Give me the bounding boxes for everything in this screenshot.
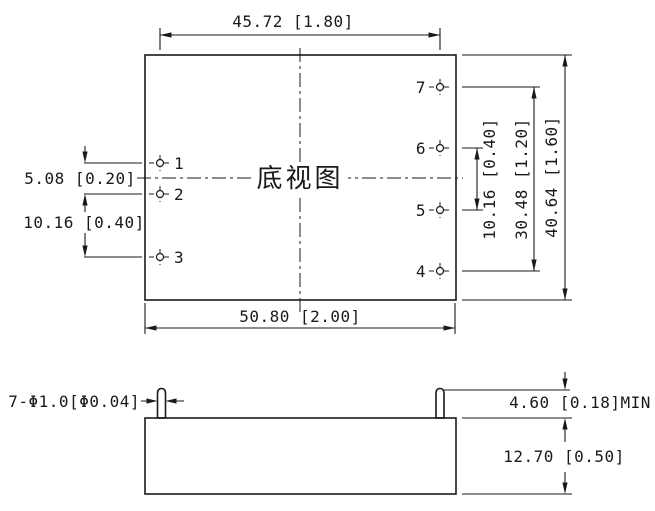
module-dimension-drawing: 底视图 1 2 3 7 6 5 <box>0 0 655 511</box>
dim-pin-span-height: 30.48 [1.20] <box>512 87 537 271</box>
dim-pin-span-width: 45.72 [1.80] <box>160 12 440 50</box>
technical-drawing-page: 底视图 1 2 3 7 6 5 <box>0 0 655 511</box>
pin-1-symbol <box>149 155 171 171</box>
pin-1-label: 1 <box>174 154 184 173</box>
pin-3-label: 3 <box>174 248 184 267</box>
pin-2-label: 2 <box>174 185 184 204</box>
dim-pin-diameter-text: 7-Φ1.0[Φ0.04] <box>8 392 140 411</box>
dim-pitch-2-3: 10.16 [0.40] <box>23 205 145 257</box>
dim-pitch-2-3-text: 10.16 [0.40] <box>23 213 145 232</box>
pin-3-symbol <box>149 249 171 265</box>
dim-pitch-5-6: 10.16 [0.40] <box>474 118 499 240</box>
pin-7-label: 7 <box>416 78 426 97</box>
dim-body-width: 50.80 [2.00] <box>145 303 455 334</box>
side-view: 7-Φ1.0[Φ0.04] 4.60 [0.18]MIN 12.70 [0.50… <box>8 372 651 494</box>
pin-5-symbol <box>429 202 451 218</box>
dim-body-width-text: 50.80 [2.00] <box>239 307 361 326</box>
view-label: 底视图 <box>256 164 343 194</box>
dim-pitch-1-2-text: 5.08 [0.20] <box>24 169 135 188</box>
side-view-left-pin <box>158 389 166 419</box>
pin-2-symbol <box>149 186 171 202</box>
pin-4-symbol <box>429 263 451 279</box>
dim-body-height: 40.64 [1.60] <box>542 55 568 300</box>
pin-6-symbol <box>429 140 451 156</box>
dim-pitch-1-2: 5.08 [0.20] <box>24 146 135 206</box>
dim-pitch-5-6-text: 10.16 [0.40] <box>480 118 499 240</box>
pin-7-symbol <box>429 79 451 95</box>
dim-body-height-text: 40.64 [1.60] <box>542 116 561 238</box>
pin-5-label: 5 <box>416 201 426 220</box>
dim-pin-length-text: 4.60 [0.18]MIN <box>509 393 651 412</box>
dim-body-thickness: 12.70 [0.50] <box>462 429 625 494</box>
pin-4-label: 4 <box>416 262 426 281</box>
side-view-body-outline <box>145 418 456 494</box>
dim-pin-span-width-text: 45.72 [1.80] <box>232 12 354 31</box>
side-view-right-pin <box>436 389 444 419</box>
pin-6-label: 6 <box>416 139 426 158</box>
dim-pin-length: 4.60 [0.18]MIN <box>444 372 651 430</box>
bottom-view: 底视图 1 2 3 7 6 5 <box>23 12 572 334</box>
dim-pin-span-height-text: 30.48 [1.20] <box>512 118 531 240</box>
dim-body-thickness-text: 12.70 [0.50] <box>503 447 625 466</box>
